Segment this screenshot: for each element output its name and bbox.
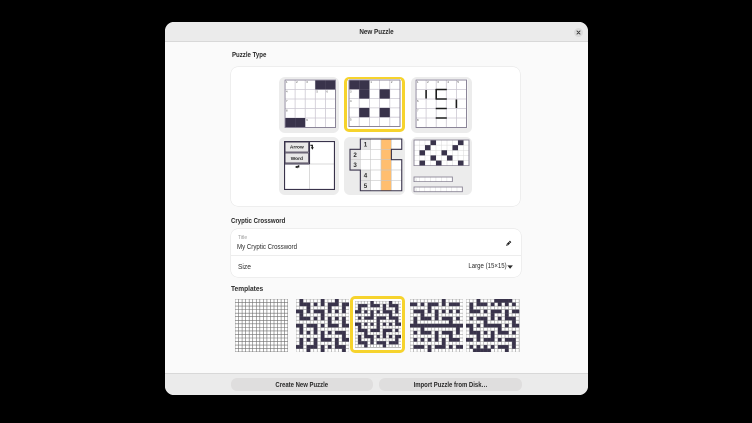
svg-text:5: 5 [458, 80, 460, 84]
svg-text:4: 4 [286, 89, 288, 93]
svg-text:Word: Word [291, 156, 303, 162]
svg-text:2: 2 [391, 80, 393, 84]
svg-text:4: 4 [364, 173, 368, 180]
svg-text:9: 9 [306, 118, 308, 122]
svg-text:1: 1 [370, 80, 372, 84]
svg-text:3: 3 [350, 90, 352, 94]
svg-text:Arrow: Arrow [290, 145, 304, 151]
svg-text:5: 5 [316, 89, 318, 93]
svg-text:6: 6 [326, 89, 328, 93]
svg-text:1: 1 [286, 80, 288, 84]
svg-text:4: 4 [448, 80, 450, 84]
svg-text:3: 3 [353, 163, 357, 170]
svg-text:3: 3 [306, 80, 308, 84]
svg-text:1: 1 [364, 142, 368, 149]
svg-text:7: 7 [286, 99, 288, 103]
svg-text:2: 2 [427, 80, 429, 84]
svg-text:6: 6 [417, 99, 419, 103]
svg-text:3: 3 [437, 80, 439, 84]
svg-text:8: 8 [417, 118, 419, 122]
svg-text:2: 2 [353, 152, 357, 159]
svg-text:8: 8 [286, 108, 288, 112]
svg-text:2: 2 [296, 80, 298, 84]
svg-text:7: 7 [417, 108, 419, 112]
svg-text:4: 4 [350, 99, 352, 103]
svg-text:5: 5 [364, 183, 368, 190]
svg-text:1: 1 [417, 80, 419, 84]
svg-text:5: 5 [350, 118, 352, 122]
